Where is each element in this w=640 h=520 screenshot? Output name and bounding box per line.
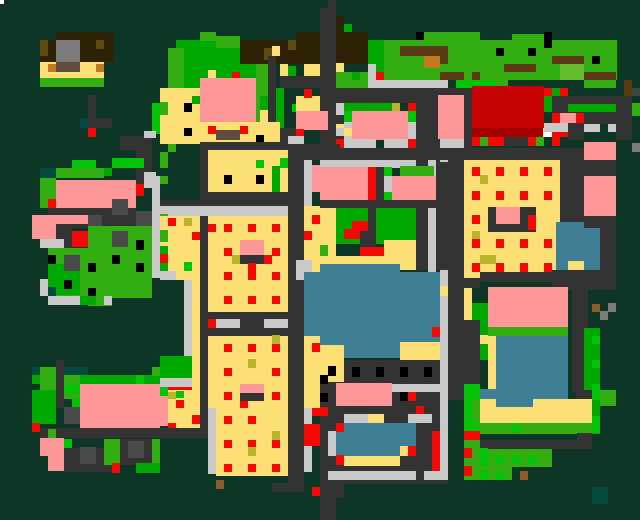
minimap-canvas[interactable]: [0, 0, 640, 520]
minimap-panel: [0, 0, 640, 520]
